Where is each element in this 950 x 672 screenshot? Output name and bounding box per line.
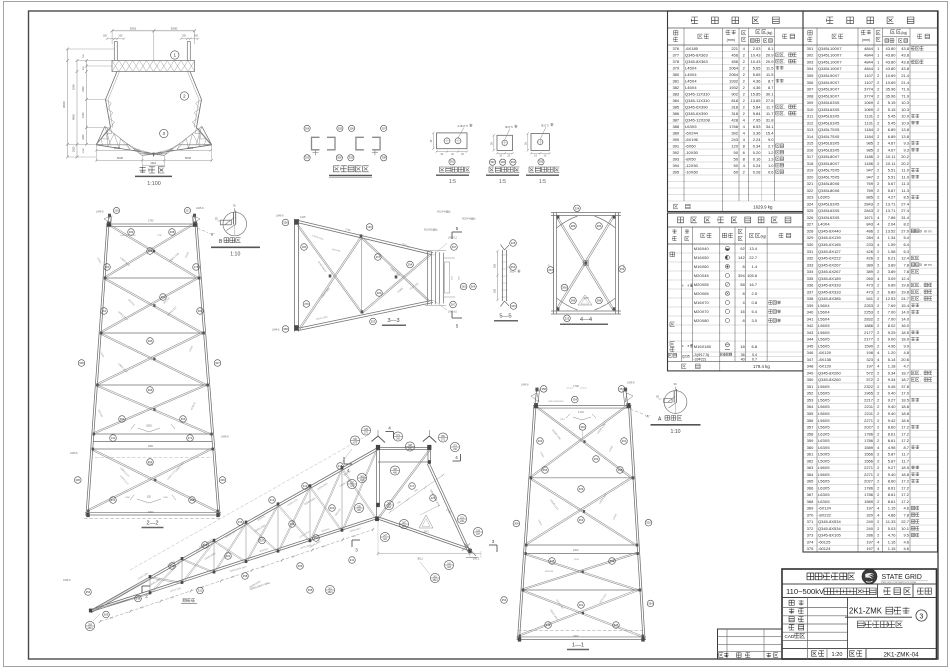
svg-text:0: 0 <box>920 229 922 233</box>
svg-text:50: 50 <box>734 150 739 155</box>
svg-text:L56X5: L56X5 <box>818 337 830 342</box>
svg-text:Q345-6X139: Q345-6X139 <box>818 235 841 240</box>
svg-text:310: 310 <box>114 208 119 212</box>
svg-text:2064: 2064 <box>729 65 739 70</box>
svg-text:Q345-8X333: Q345-8X333 <box>818 289 841 294</box>
svg-text:34.1: 34.1 <box>766 124 775 129</box>
svg-text:1671: 1671 <box>864 215 874 220</box>
svg-text:4844: 4844 <box>864 53 874 58</box>
svg-text:322: 322 <box>807 188 814 193</box>
svg-text:13.8: 13.8 <box>901 127 910 132</box>
svg-text:4.8: 4.8 <box>903 350 909 355</box>
svg-text:885: 885 <box>866 195 873 200</box>
svg-text:303: 303 <box>330 506 335 510</box>
svg-text:1:10: 1:10 <box>670 429 680 435</box>
svg-text:3—3: 3—3 <box>387 318 399 324</box>
svg-text:Q345L63X5: Q345L63X5 <box>818 208 840 213</box>
svg-text:360: 360 <box>807 445 814 450</box>
svg-text:1131: 1131 <box>460 521 466 523</box>
svg-text:1900: 1900 <box>71 84 75 90</box>
svg-text:380: 380 <box>672 72 679 77</box>
svg-text:3: 3 <box>355 548 358 553</box>
svg-text:354: 354 <box>511 265 516 269</box>
svg-text:,: , <box>920 290 921 294</box>
svg-text:5: 5 <box>456 226 459 231</box>
svg-text:3: 3 <box>163 131 166 136</box>
svg-text:2.03: 2.03 <box>753 46 762 51</box>
svg-text:4.96: 4.96 <box>888 343 897 348</box>
svg-text:M20X55: M20X55 <box>694 282 710 287</box>
svg-text:351: 351 <box>807 384 814 389</box>
svg-text:-3(Φ22): -3(Φ22) <box>693 358 706 362</box>
svg-text:486: 486 <box>866 229 873 234</box>
svg-text:2.7: 2.7 <box>768 143 774 148</box>
svg-text:197: 197 <box>866 546 873 551</box>
svg-text:M20X45: M20X45 <box>694 273 710 278</box>
svg-text:CAD: CAD <box>785 634 795 639</box>
svg-text:310: 310 <box>105 265 110 269</box>
svg-text:(mm): (mm) <box>727 38 735 42</box>
svg-text:43.80: 43.80 <box>885 60 896 65</box>
svg-text:426: 426 <box>866 249 873 254</box>
svg-text:345: 345 <box>614 623 619 627</box>
svg-text:37.8: 37.8 <box>901 384 910 389</box>
svg-text:58: 58 <box>740 282 745 287</box>
svg-text:366: 366 <box>148 388 153 392</box>
svg-text:5.84: 5.84 <box>753 111 762 116</box>
svg-text:Q345L63X5: Q345L63X5 <box>818 201 840 206</box>
svg-text:L56X5: L56X5 <box>818 404 830 409</box>
svg-text:4.36: 4.36 <box>753 78 762 83</box>
svg-text:L63X5: L63X5 <box>818 499 830 504</box>
svg-text:1069: 1069 <box>864 107 874 112</box>
svg-text:2K1-ZMK-04: 2K1-ZMK-04 <box>883 651 919 658</box>
svg-text:2843: 2843 <box>864 208 874 213</box>
svg-text:2322: 2322 <box>864 384 874 389</box>
svg-text:348: 348 <box>550 559 555 563</box>
svg-text:10.43: 10.43 <box>750 52 761 57</box>
svg-text:8.1: 8.1 <box>768 46 774 51</box>
svg-text:370: 370 <box>807 512 814 517</box>
svg-text:327: 327 <box>807 222 814 227</box>
svg-text:221: 221 <box>731 46 738 51</box>
svg-text:250: 250 <box>494 263 497 268</box>
svg-text:2027: 2027 <box>864 425 874 430</box>
svg-text:18.8: 18.8 <box>901 404 910 409</box>
svg-text:3000: 3000 <box>171 27 178 31</box>
svg-text:L40X4: L40X4 <box>818 222 830 227</box>
svg-text:389: 389 <box>866 262 873 267</box>
svg-text:10.9: 10.9 <box>901 120 910 125</box>
svg-text:0.28: 0.28 <box>753 169 762 174</box>
svg-text:985: 985 <box>866 147 873 152</box>
svg-text:305: 305 <box>298 564 303 568</box>
svg-text:Q345-8X363: Q345-8X363 <box>685 59 708 64</box>
svg-text:60: 60 <box>734 169 739 174</box>
svg-text:22.7: 22.7 <box>749 255 758 260</box>
svg-text:947: 947 <box>866 174 873 179</box>
svg-text:2K1-ZMK: 2K1-ZMK <box>849 607 883 616</box>
svg-text:2003: 2003 <box>187 146 194 150</box>
svg-text:M20X45螺栓: M20X45螺栓 <box>462 217 476 221</box>
svg-text:10.69: 10.69 <box>885 80 896 85</box>
svg-text:1186: 1186 <box>864 161 873 166</box>
svg-text:2253: 2253 <box>864 303 874 308</box>
svg-text:Q345L75X5: Q345L75X5 <box>818 127 840 132</box>
svg-text:311: 311 <box>111 436 116 440</box>
svg-text:43.8: 43.8 <box>901 53 910 58</box>
svg-text:300.1: 300.1 <box>473 557 480 561</box>
svg-text:10.11: 10.11 <box>886 154 896 159</box>
svg-text:1786: 1786 <box>864 431 874 436</box>
svg-text:L945-8 M20X45: L945-8 M20X45 <box>548 401 564 403</box>
svg-text:L50X5: L50X5 <box>818 452 830 457</box>
svg-text:4800: 4800 <box>71 114 75 120</box>
svg-text:22.7: 22.7 <box>901 519 910 524</box>
svg-text:18.5: 18.5 <box>901 330 910 335</box>
svg-text:Q345-11X310: Q345-11X310 <box>685 91 710 96</box>
svg-text:L56X5: L56X5 <box>818 411 830 416</box>
svg-text:Q345-8X260: Q345-8X260 <box>818 377 841 382</box>
svg-text:356: 356 <box>807 418 814 423</box>
svg-text:5.65: 5.65 <box>753 65 762 70</box>
svg-text:9.27: 9.27 <box>888 398 897 403</box>
svg-text:5.67: 5.67 <box>888 181 897 186</box>
svg-text:5.51: 5.51 <box>888 168 897 173</box>
svg-text:10.11: 10.11 <box>886 161 896 166</box>
svg-text:359: 359 <box>807 438 814 443</box>
svg-text:9.34: 9.34 <box>888 377 897 382</box>
svg-text:310: 310 <box>198 589 203 593</box>
svg-text:L945-12: L945-12 <box>448 237 457 240</box>
svg-text:8.61: 8.61 <box>888 492 897 497</box>
svg-text:371: 371 <box>188 436 193 440</box>
svg-text:L56X5: L56X5 <box>818 343 830 348</box>
svg-text:325: 325 <box>511 304 516 308</box>
svg-text:1700: 1700 <box>573 384 579 388</box>
svg-text:350: 350 <box>807 377 814 382</box>
svg-text:120: 120 <box>731 143 738 148</box>
svg-text:367: 367 <box>807 492 814 497</box>
svg-text:-8X138: -8X138 <box>818 357 832 362</box>
svg-text:332: 332 <box>807 256 814 261</box>
svg-text:5.87: 5.87 <box>888 452 897 457</box>
svg-text:302: 302 <box>226 554 231 558</box>
svg-text:1:5: 1:5 <box>499 179 506 185</box>
svg-text:1107: 1107 <box>864 73 873 78</box>
svg-text:13.65: 13.65 <box>750 98 761 103</box>
svg-text:2177: 2177 <box>864 330 874 335</box>
svg-text:375: 375 <box>807 546 814 551</box>
svg-text:17.2: 17.2 <box>901 438 910 443</box>
svg-text:9.5: 9.5 <box>903 533 909 538</box>
svg-text:3: 3 <box>920 613 924 620</box>
svg-text:4844: 4844 <box>327 592 333 594</box>
svg-text:386: 386 <box>597 224 602 228</box>
svg-text:303: 303 <box>538 439 543 443</box>
svg-text:,: , <box>920 378 921 382</box>
svg-text:9.42: 9.42 <box>888 418 897 423</box>
svg-text:2211: 2211 <box>864 404 873 409</box>
svg-text:384: 384 <box>672 98 679 103</box>
svg-text:5.51: 5.51 <box>888 174 897 179</box>
svg-text:L45X4: L45X4 <box>685 72 697 77</box>
svg-text:5.84: 5.84 <box>753 104 762 109</box>
svg-text:12.4: 12.4 <box>901 256 910 261</box>
svg-text:4.67: 4.67 <box>888 147 897 152</box>
svg-text:-6X129: -6X129 <box>818 350 832 355</box>
svg-text:306: 306 <box>220 478 225 482</box>
svg-text:363: 363 <box>148 249 153 253</box>
svg-text:1000: 1000 <box>83 147 85 153</box>
svg-text:43.8: 43.8 <box>901 66 910 71</box>
svg-text:5.67: 5.67 <box>888 188 897 193</box>
svg-text:1.20: 1.20 <box>888 350 897 355</box>
svg-text:367: 367 <box>451 303 456 307</box>
svg-text:0.16: 0.16 <box>753 156 762 161</box>
svg-text:300: 300 <box>103 35 108 38</box>
svg-text:L56X5: L56X5 <box>818 391 830 396</box>
svg-text:304: 304 <box>622 439 627 443</box>
svg-text:0: 0 <box>920 263 922 267</box>
svg-text:1566: 1566 <box>864 452 874 457</box>
svg-text:4.98: 4.98 <box>888 445 897 450</box>
svg-text:338: 338 <box>807 296 814 301</box>
svg-text:17.0: 17.0 <box>901 391 910 396</box>
svg-text:306: 306 <box>290 522 295 526</box>
svg-text:349: 349 <box>546 623 551 627</box>
svg-text:L945-8 M16X40: L945-8 M16X40 <box>120 235 136 237</box>
svg-text:1075: 1075 <box>583 297 589 300</box>
svg-text:0.24: 0.24 <box>753 163 762 168</box>
svg-text:L56X4: L56X4 <box>818 303 830 308</box>
svg-text:m: m <box>928 229 931 233</box>
svg-text:Q345-8X127: Q345-8X127 <box>818 249 841 254</box>
svg-text:L63X5: L63X5 <box>818 485 830 490</box>
svg-text:,: , <box>920 297 921 301</box>
svg-text:391: 391 <box>450 160 455 164</box>
svg-text:10.9: 10.9 <box>901 114 910 119</box>
svg-text:M20X70: M20X70 <box>694 309 710 314</box>
svg-text:Q345-8X440: Q345-8X440 <box>818 229 841 234</box>
svg-text:L56X5: L56X5 <box>818 425 830 430</box>
svg-text:0.34: 0.34 <box>753 143 762 148</box>
svg-text:m: m <box>924 263 927 267</box>
svg-text:8.02: 8.02 <box>888 323 897 328</box>
svg-text:2100: 2100 <box>573 549 579 552</box>
svg-text:4.67: 4.67 <box>888 141 897 146</box>
svg-text:304: 304 <box>305 126 310 130</box>
svg-text:354: 354 <box>807 404 814 409</box>
svg-text:1.2: 1.2 <box>768 150 774 155</box>
svg-text:368: 368 <box>562 286 567 290</box>
svg-text:2081: 2081 <box>146 425 152 428</box>
svg-text:0.8: 0.8 <box>752 300 758 305</box>
svg-text:394: 394 <box>511 160 516 164</box>
svg-text:301: 301 <box>807 46 814 51</box>
svg-text:11.7: 11.7 <box>902 458 910 463</box>
svg-text:(kg): (kg) <box>760 235 766 239</box>
svg-text:456: 456 <box>731 59 738 64</box>
svg-text:7.8: 7.8 <box>903 512 909 517</box>
svg-text:2843: 2843 <box>864 201 874 206</box>
svg-text:331: 331 <box>807 249 814 254</box>
svg-text:1:20: 1:20 <box>832 652 843 658</box>
svg-text:362: 362 <box>807 458 814 463</box>
svg-text:110~500kV: 110~500kV <box>786 587 825 596</box>
svg-text:Q345-8X534: Q345-8X534 <box>818 526 841 531</box>
svg-text:-8X222: -8X222 <box>818 512 832 517</box>
svg-text:307: 307 <box>807 87 814 92</box>
svg-text:31.4: 31.4 <box>901 215 910 220</box>
svg-text:302: 302 <box>807 53 814 58</box>
svg-text:395: 395 <box>672 169 679 174</box>
svg-text:3.36: 3.36 <box>753 130 762 135</box>
svg-text:19.8: 19.8 <box>901 289 910 294</box>
svg-text:L63X5: L63X5 <box>685 124 697 129</box>
svg-text:Φ17.5: Φ17.5 <box>541 123 549 127</box>
svg-text:197: 197 <box>866 364 873 369</box>
svg-text:197: 197 <box>866 506 873 511</box>
svg-text:9.40: 9.40 <box>888 404 897 409</box>
svg-text:6.3: 6.3 <box>903 249 909 254</box>
svg-text:27.0: 27.0 <box>901 229 910 234</box>
svg-text:L56X5: L56X5 <box>818 479 830 484</box>
svg-text:M20X80: M20X80 <box>694 318 710 323</box>
svg-text:303: 303 <box>807 60 814 65</box>
svg-text:Q345L90X7: Q345L90X7 <box>818 80 840 85</box>
svg-text:L45X4: L45X4 <box>685 85 697 90</box>
svg-text:10.69: 10.69 <box>885 73 896 78</box>
svg-text:334: 334 <box>575 206 580 210</box>
svg-text:2—2: 2—2 <box>146 521 158 527</box>
svg-text:902: 902 <box>731 91 738 96</box>
svg-text:308: 308 <box>514 522 519 526</box>
svg-text:1184: 1184 <box>864 134 873 139</box>
svg-text:Q345-8X363: Q345-8X363 <box>685 52 708 57</box>
svg-text:309: 309 <box>104 613 109 617</box>
svg-text:1:10: 1:10 <box>230 251 240 257</box>
svg-text:985: 985 <box>866 141 873 146</box>
svg-text:L946-10: L946-10 <box>448 311 457 314</box>
svg-text:Q345L63X5: Q345L63X5 <box>818 100 840 105</box>
svg-text:312: 312 <box>807 120 814 125</box>
svg-text:240: 240 <box>866 526 873 531</box>
svg-text:321: 321 <box>807 181 814 186</box>
svg-text:374: 374 <box>807 539 814 544</box>
svg-text:5.87: 5.87 <box>888 458 897 463</box>
svg-text:2217: 2217 <box>864 398 874 403</box>
svg-text:308: 308 <box>337 156 342 160</box>
svg-text:395: 395 <box>539 160 544 164</box>
svg-text:35.96: 35.96 <box>885 93 896 98</box>
svg-text:349: 349 <box>807 370 814 375</box>
svg-text:305: 305 <box>807 73 814 78</box>
svg-text:354: 354 <box>573 398 578 402</box>
svg-text:5.4: 5.4 <box>903 235 909 240</box>
svg-text:Q345-6X165: Q345-6X165 <box>818 242 841 247</box>
svg-text:1786: 1786 <box>864 492 874 497</box>
svg-text:326: 326 <box>511 241 516 245</box>
svg-text:,: , <box>784 53 785 57</box>
svg-text:13.4: 13.4 <box>749 246 758 251</box>
svg-text:379: 379 <box>304 302 309 306</box>
svg-text:43.80: 43.80 <box>885 53 896 58</box>
svg-text:m: m <box>924 229 927 233</box>
svg-text:1.16: 1.16 <box>888 539 897 544</box>
svg-text:4: 4 <box>388 426 391 431</box>
svg-text:Q345-8X333: Q345-8X333 <box>818 283 841 288</box>
svg-text:318: 318 <box>731 104 738 109</box>
svg-text:L946-6: L946-6 <box>272 329 280 332</box>
svg-text:250: 250 <box>494 288 497 293</box>
svg-text:35.96: 35.96 <box>885 87 896 92</box>
svg-text:1:5: 1:5 <box>539 179 546 185</box>
svg-text:360: 360 <box>198 309 203 313</box>
svg-text:L56X5: L56X5 <box>818 465 830 470</box>
svg-text:233: 233 <box>866 242 873 247</box>
svg-text:361: 361 <box>579 603 584 607</box>
svg-text:3X14: 3X14 <box>510 270 517 274</box>
svg-text:1589: 1589 <box>864 445 874 450</box>
svg-text:389: 389 <box>571 224 576 228</box>
svg-text:572: 572 <box>866 377 873 382</box>
svg-text:Q345L90X7: Q345L90X7 <box>818 87 840 92</box>
svg-text:9.00: 9.00 <box>888 337 897 342</box>
svg-text:6.89: 6.89 <box>888 134 897 139</box>
svg-text:9.3: 9.3 <box>903 147 909 152</box>
svg-text:11.33: 11.33 <box>886 519 896 524</box>
svg-text:36: 36 <box>741 353 745 357</box>
svg-text:8.5: 8.5 <box>903 195 909 200</box>
svg-text:304: 304 <box>807 66 814 71</box>
svg-text:572: 572 <box>866 370 873 375</box>
svg-text:377: 377 <box>672 52 679 57</box>
svg-text:383: 383 <box>672 91 679 96</box>
svg-text:Q345L100X7: Q345L100X7 <box>818 46 842 51</box>
svg-text:0.6: 0.6 <box>768 169 774 174</box>
svg-text:302: 302 <box>646 521 651 525</box>
svg-text:335: 335 <box>807 276 814 281</box>
svg-text:Q345L63X5: Q345L63X5 <box>818 215 840 220</box>
svg-text:L945-8: L945-8 <box>70 452 78 455</box>
svg-text:9.89: 9.89 <box>888 289 897 294</box>
svg-text:364: 364 <box>807 472 814 477</box>
svg-text:3.0: 3.0 <box>752 318 758 323</box>
svg-text:11.5: 11.5 <box>766 72 774 77</box>
svg-text:1787: 1787 <box>560 419 566 421</box>
svg-text:9.34: 9.34 <box>888 370 897 375</box>
svg-text:L945-8: L945-8 <box>63 579 71 582</box>
svg-text:0.4: 0.4 <box>752 353 757 357</box>
svg-text:Q345-6X267: Q345-6X267 <box>818 269 841 274</box>
svg-text:-60125: -60125 <box>818 539 831 544</box>
svg-text:-6X60: -6X60 <box>685 143 696 148</box>
svg-text:8.61: 8.61 <box>888 499 897 504</box>
svg-text:5000: 5000 <box>117 156 124 160</box>
svg-text:2271: 2271 <box>864 472 874 477</box>
svg-text:14.0: 14.0 <box>901 316 910 321</box>
svg-text:L45X4: L45X4 <box>685 65 697 70</box>
svg-text:27.5: 27.5 <box>766 98 775 103</box>
svg-text:1.59: 1.59 <box>888 242 897 247</box>
svg-text:308: 308 <box>79 361 84 365</box>
svg-text:320: 320 <box>866 512 873 517</box>
svg-text:2.04: 2.04 <box>888 222 897 227</box>
svg-text:Q345-8X534: Q345-8X534 <box>818 519 841 524</box>
svg-text:"A": "A" <box>645 415 651 419</box>
svg-text:5.4: 5.4 <box>752 309 758 314</box>
